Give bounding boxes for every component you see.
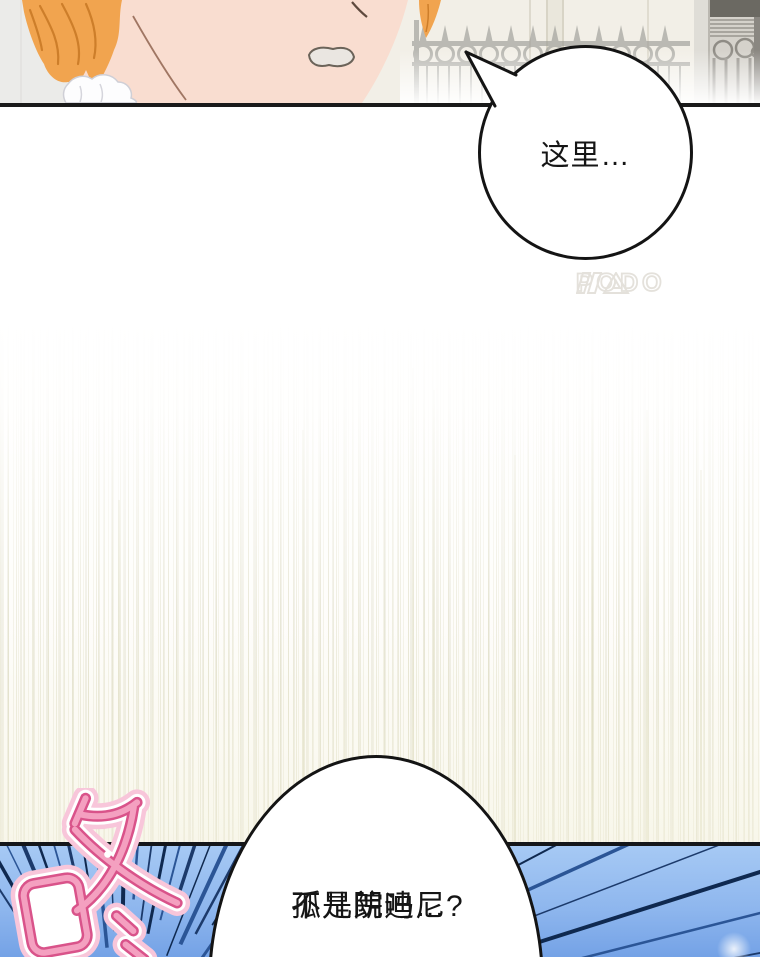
- watermark-text: PODO: [576, 269, 666, 298]
- speech-bubble-tail: [455, 40, 535, 115]
- comic-page: PODO 这里… 不是朗迪尼 孤儿院吗…?: [0, 0, 760, 957]
- speech-bubble-bottom-line2: 孤儿院吗…?: [291, 888, 464, 926]
- watermark: PODO: [576, 270, 756, 296]
- sparkle-glow: [717, 932, 751, 957]
- character-mouth: [309, 48, 354, 66]
- sfx-dong: [0, 788, 202, 957]
- speech-bubble-top-text: 这里…: [540, 132, 630, 174]
